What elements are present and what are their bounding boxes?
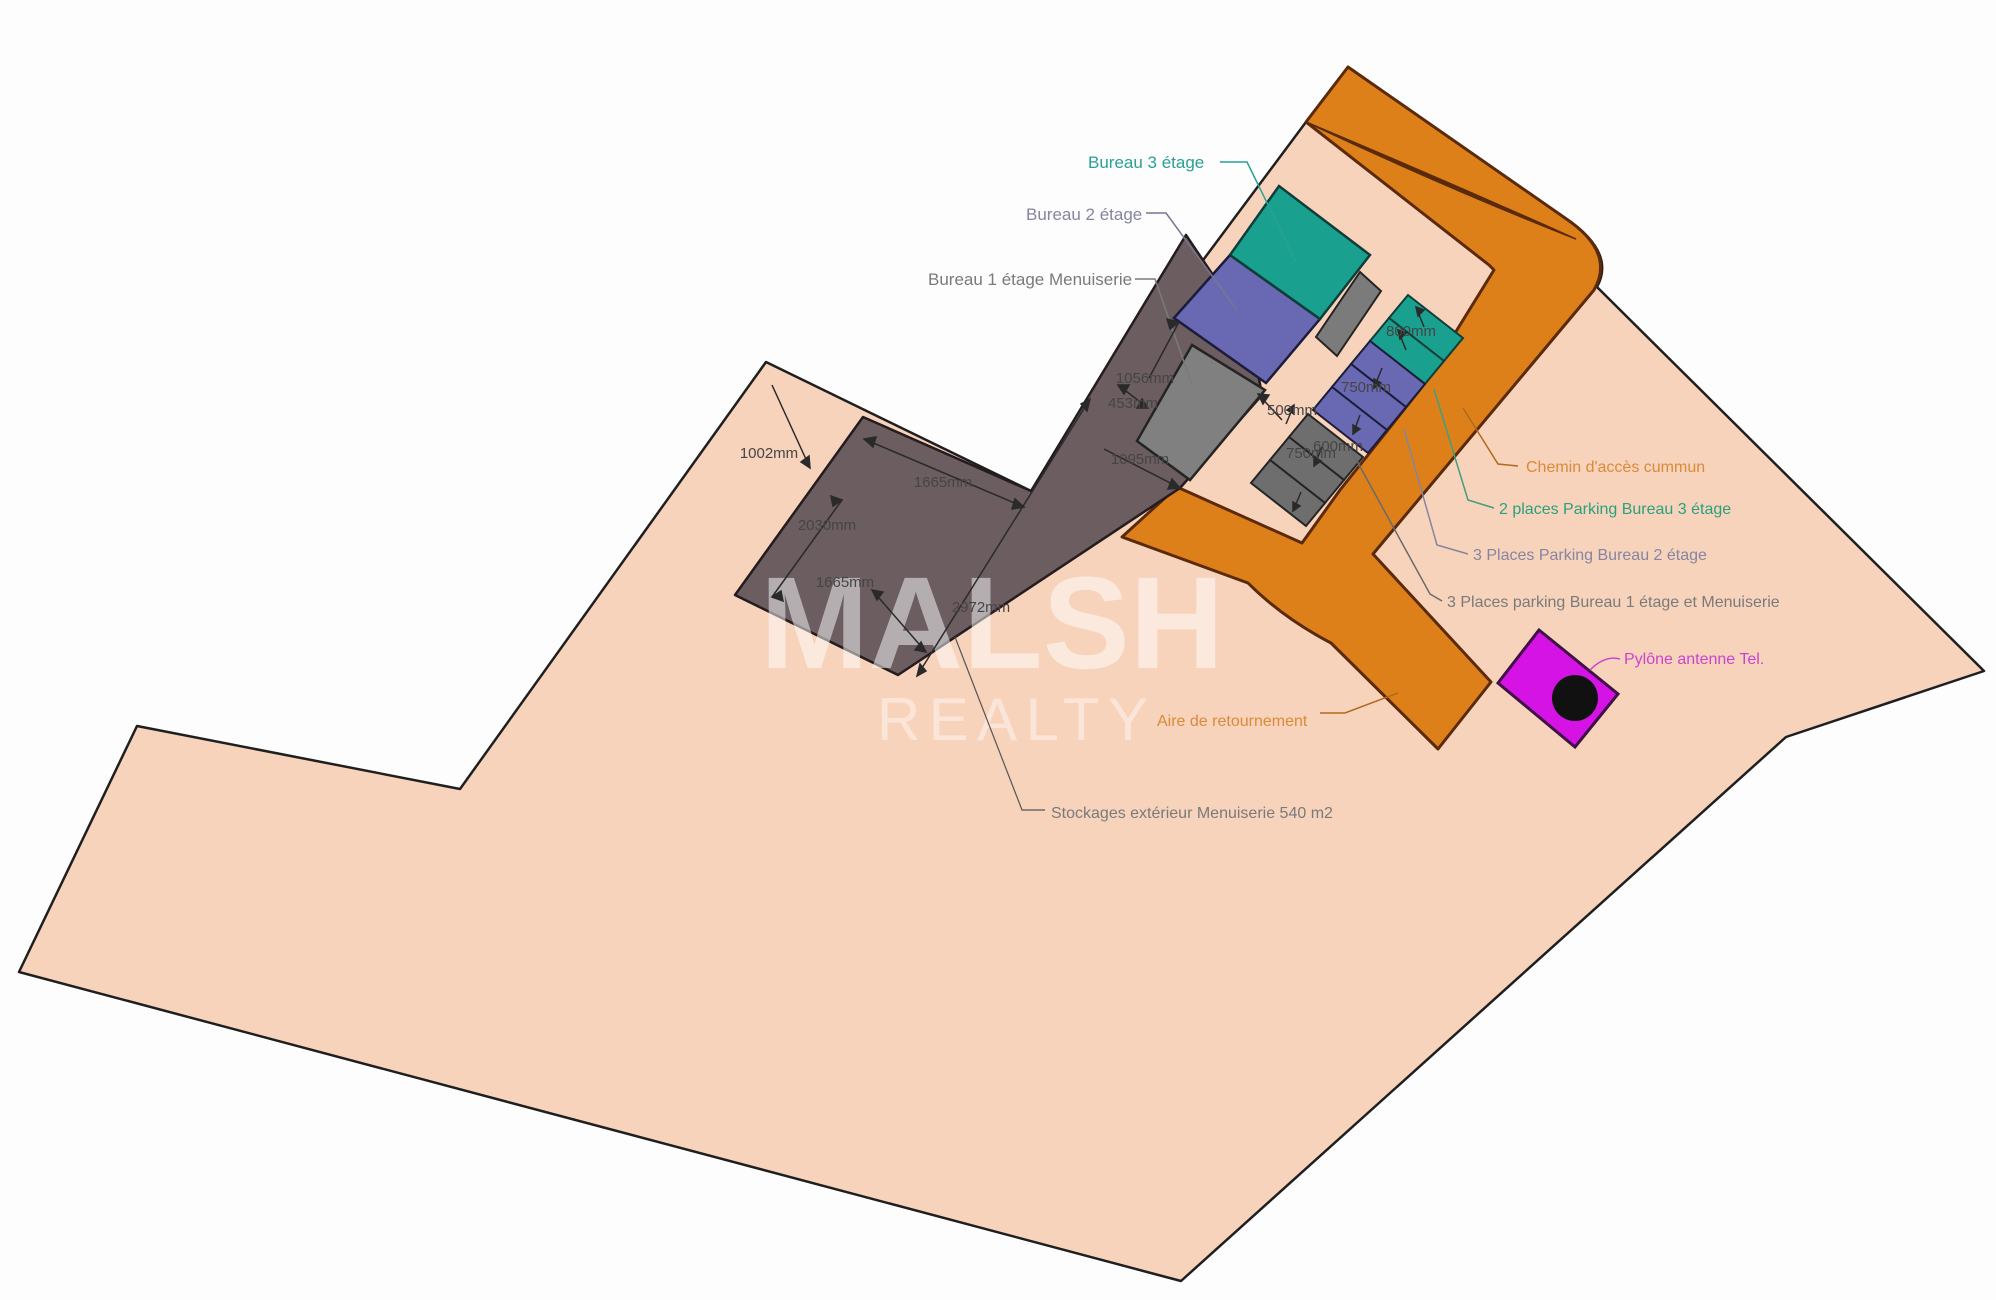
svg-text:Stockages extérieur Menuiserie: Stockages extérieur Menuiserie 540 m2 xyxy=(1051,805,1333,822)
svg-text:Pylône antenne Tel.: Pylône antenne Tel. xyxy=(1624,651,1764,668)
svg-text:REALTY: REALTY xyxy=(877,686,1148,753)
svg-text:Aire de retournement: Aire de retournement xyxy=(1157,713,1308,730)
svg-text:1665mm: 1665mm xyxy=(816,574,874,591)
svg-text:Chemin d'accès cummun: Chemin d'accès cummun xyxy=(1526,459,1705,476)
svg-text:500mm: 500mm xyxy=(1267,402,1317,419)
svg-text:MALSH: MALSH xyxy=(760,549,1224,696)
svg-text:750mm: 750mm xyxy=(1341,379,1391,396)
svg-text:3 Places Parking Bureau 2 étag: 3 Places Parking Bureau 2 étage xyxy=(1473,547,1707,564)
svg-text:2 places Parking Bureau 3 étag: 2 places Parking Bureau 3 étage xyxy=(1499,501,1731,518)
svg-text:800mm: 800mm xyxy=(1386,323,1436,340)
svg-text:Bureau 1 étage Menuiserie: Bureau 1 étage Menuiserie xyxy=(928,270,1132,289)
svg-text:3 Places parking Bureau 1 étag: 3 Places parking Bureau 1 étage et Menui… xyxy=(1447,594,1780,611)
svg-text:453mm: 453mm xyxy=(1108,395,1158,412)
svg-text:2972mm: 2972mm xyxy=(952,599,1010,616)
svg-text:1095mm: 1095mm xyxy=(1111,451,1169,468)
svg-text:Bureau 3 étage: Bureau 3 étage xyxy=(1088,153,1204,172)
svg-text:750mm: 750mm xyxy=(1286,445,1336,462)
svg-text:1056mm: 1056mm xyxy=(1116,370,1174,387)
svg-text:2030mm: 2030mm xyxy=(798,517,856,534)
svg-text:1665mm: 1665mm xyxy=(914,474,972,491)
svg-text:1002mm: 1002mm xyxy=(740,445,798,462)
svg-text:Bureau 2 étage: Bureau 2 étage xyxy=(1026,205,1142,224)
